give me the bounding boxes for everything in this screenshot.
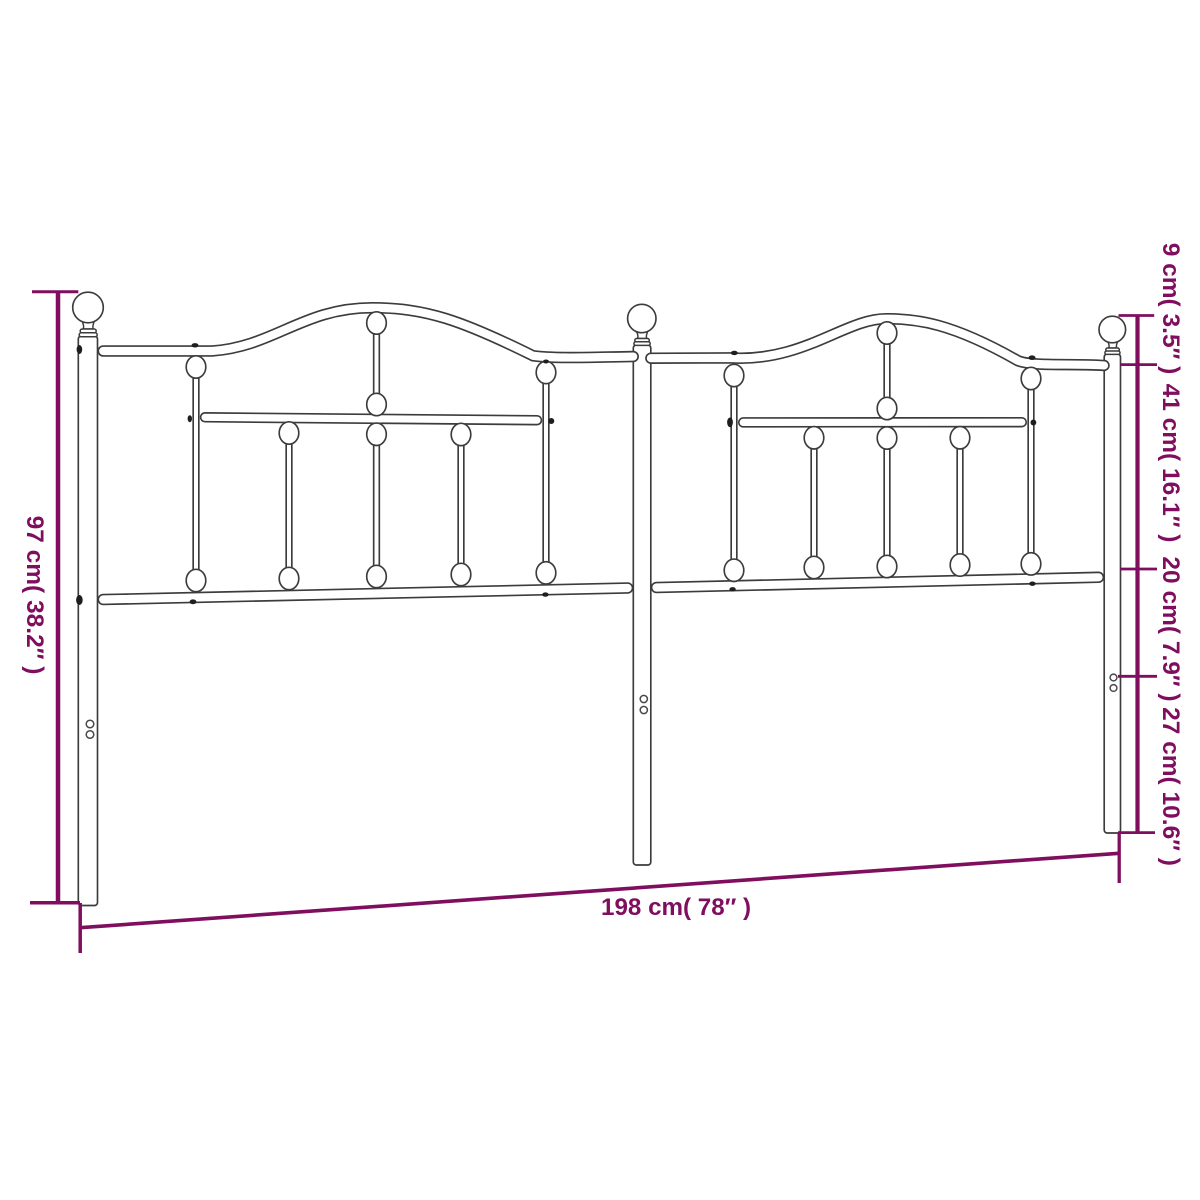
svg-text:41 cm( 16.1″ ): 41 cm( 16.1″ ) [1157, 384, 1184, 543]
svg-text:20 cm( 7.9″ ): 20 cm( 7.9″ ) [1157, 556, 1184, 701]
svg-text:9 cm( 3.5″ ): 9 cm( 3.5″ ) [1157, 243, 1184, 375]
svg-text:97 cm( 38.2″ ): 97 cm( 38.2″ ) [21, 516, 48, 675]
svg-text:198 cm( 78″ ): 198 cm( 78″ ) [601, 894, 751, 921]
svg-text:27 cm( 10.6″ ): 27 cm( 10.6″ ) [1157, 707, 1184, 866]
